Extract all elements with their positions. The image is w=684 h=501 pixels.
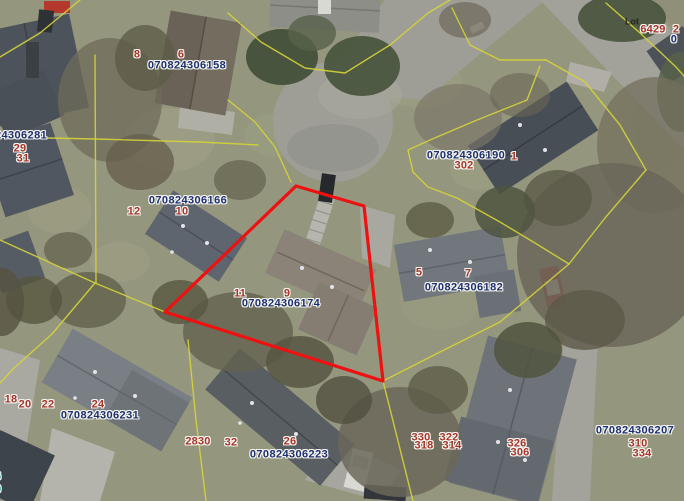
car (26, 42, 39, 78)
car (37, 9, 54, 32)
aerial-imagery (0, 0, 684, 501)
car (318, 0, 331, 14)
aerial-parcel-map[interactable]: 0708243061580708243062810708243061900708… (0, 0, 684, 501)
